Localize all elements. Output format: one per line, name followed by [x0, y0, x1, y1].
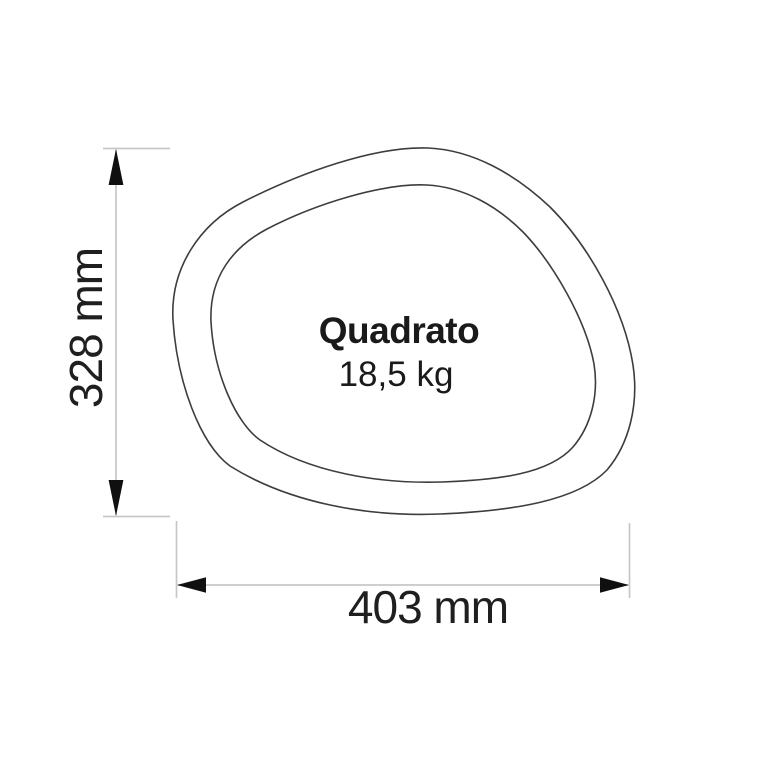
- height-dimension: [103, 149, 170, 517]
- technical-drawing-canvas: Quadrato 18,5 kg 403 mm 328 mm: [0, 0, 767, 767]
- product-name-label: Quadrato: [319, 310, 479, 351]
- arrowhead-right-icon: [600, 577, 629, 592]
- product-weight-label: 18,5 kg: [339, 355, 454, 394]
- arrowhead-down-icon: [109, 480, 124, 516]
- height-dimension-label: 328 mm: [60, 248, 112, 408]
- arrowhead-up-icon: [109, 149, 124, 185]
- arrowhead-left-icon: [177, 577, 206, 592]
- dimension-diagram: Quadrato 18,5 kg 403 mm 328 mm: [0, 0, 767, 767]
- width-dimension-label: 403 mm: [348, 581, 508, 633]
